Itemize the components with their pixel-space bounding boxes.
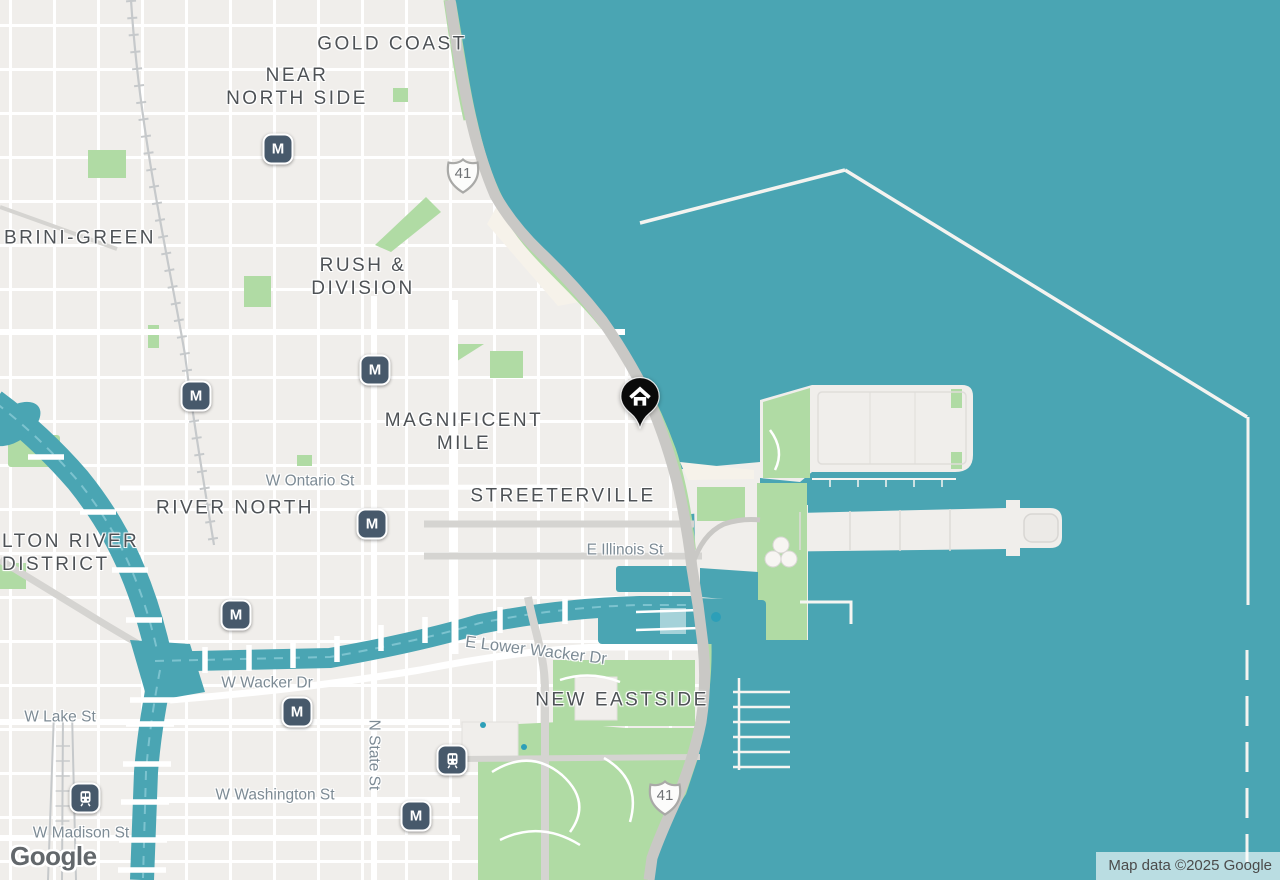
metro-station-icon[interactable]: M bbox=[181, 381, 212, 412]
train-station-icon[interactable] bbox=[437, 745, 468, 776]
home-marker[interactable] bbox=[618, 376, 662, 432]
metro-letter: M bbox=[366, 516, 379, 533]
metro-station-icon[interactable]: M bbox=[360, 355, 391, 386]
metro-station-icon[interactable]: M bbox=[357, 509, 388, 540]
train-station-icon[interactable] bbox=[70, 783, 101, 814]
home-icon bbox=[618, 376, 662, 432]
route-number: 41 bbox=[647, 787, 683, 804]
route-number: 41 bbox=[445, 165, 481, 182]
map-base-layer bbox=[0, 0, 1280, 880]
metro-station-icon[interactable]: M bbox=[401, 801, 432, 832]
metro-letter: M bbox=[190, 388, 203, 405]
route-shield-us41: 41 bbox=[445, 157, 481, 195]
metro-station-icon[interactable]: M bbox=[263, 134, 294, 165]
train-glyph bbox=[75, 788, 95, 808]
map-attribution: Map data ©2025 Google bbox=[1096, 852, 1280, 880]
metro-letter: M bbox=[410, 808, 423, 825]
metro-station-icon[interactable]: M bbox=[221, 600, 252, 631]
metro-letter: M bbox=[291, 704, 304, 721]
metro-station-icon[interactable]: M bbox=[282, 697, 313, 728]
route-shield-us41: 41 bbox=[647, 779, 683, 817]
map-canvas[interactable]: GOLD COAST NEAR NORTH SIDE BRINI-GREEN R… bbox=[0, 0, 1280, 880]
metro-letter: M bbox=[369, 362, 382, 379]
google-logo[interactable]: Google bbox=[10, 841, 97, 872]
metro-letter: M bbox=[272, 141, 285, 158]
train-glyph bbox=[442, 750, 462, 770]
metro-letter: M bbox=[230, 607, 243, 624]
